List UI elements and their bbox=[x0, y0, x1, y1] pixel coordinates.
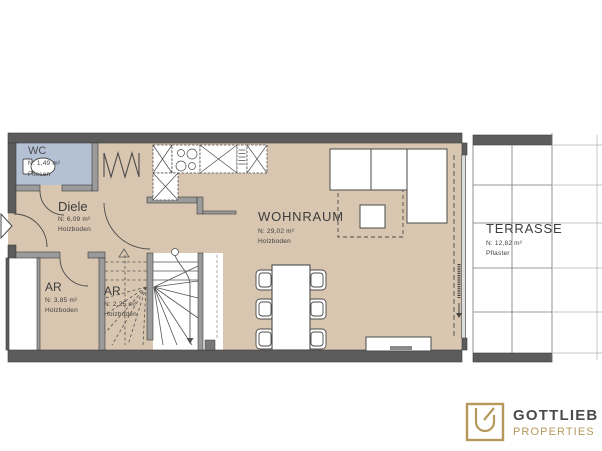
room-floor: Pflaster bbox=[486, 251, 562, 258]
room-area: N: 1,49 m² bbox=[28, 161, 60, 168]
sideboard bbox=[366, 337, 431, 351]
room-area: N: 12,82 m² bbox=[486, 241, 562, 248]
room-label-ar-left: AR N: 3,85 m² Holzboden bbox=[45, 281, 78, 314]
room-name: TERRASSE bbox=[486, 222, 562, 235]
floorplan-page: WC N: 1,49 m² Fliesen Diele N: 6,09 m² H… bbox=[0, 0, 602, 451]
room-floor: Fliesen bbox=[28, 172, 60, 179]
room-area: N: 29,02 m² bbox=[258, 229, 344, 236]
room-area: N: 3,85 m² bbox=[45, 298, 78, 305]
room-label-wohnraum: WOHNRAUM N: 29,02 m² Holzboden bbox=[258, 210, 344, 245]
room-floor: Holzboden bbox=[104, 312, 137, 319]
dining-set bbox=[256, 265, 326, 350]
room-floor: Holzboden bbox=[58, 227, 91, 234]
logo-subtitle: PROPERTIES bbox=[513, 426, 598, 438]
logo-icon bbox=[464, 401, 506, 443]
room-name: Diele bbox=[58, 200, 91, 213]
room-label-diele: Diele N: 6,09 m² Holzboden bbox=[58, 200, 91, 233]
coffee-table bbox=[360, 205, 385, 228]
room-name: AR bbox=[45, 281, 78, 293]
room-label-terrasse: TERRASSE N: 12,82 m² Pflaster bbox=[486, 222, 562, 257]
room-area: N: 2,25 m² bbox=[104, 302, 137, 309]
room-name: WOHNRAUM bbox=[258, 210, 344, 223]
room-label-ar-right: AR N: 2,25 m² Holzboden bbox=[104, 285, 137, 318]
room-label-wc: WC N: 1,49 m² Fliesen bbox=[28, 146, 60, 178]
logo-text: GOTTLIEB PROPERTIES bbox=[513, 407, 598, 438]
room-name: WC bbox=[28, 146, 60, 157]
logo-brand: GOTTLIEB bbox=[513, 407, 598, 424]
room-floor: Holzboden bbox=[258, 239, 344, 246]
room-floor: Holzboden bbox=[45, 308, 78, 315]
logo: GOTTLIEB PROPERTIES bbox=[464, 401, 598, 443]
room-name: AR bbox=[104, 285, 137, 297]
room-area: N: 6,09 m² bbox=[58, 217, 91, 224]
